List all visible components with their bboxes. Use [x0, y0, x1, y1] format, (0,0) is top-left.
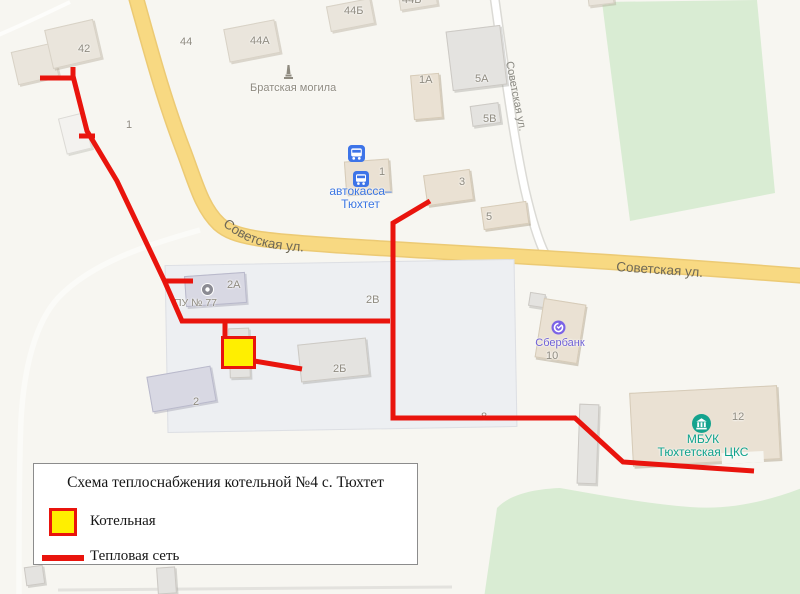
- legend-title: Схема теплоснабжения котельной №4 с. Тюх…: [34, 474, 417, 492]
- map-canvas[interactable]: Советская ул. Советская ул. Советская ул…: [0, 0, 800, 594]
- legend-box: Схема теплоснабжения котельной №4 с. Тюх…: [33, 463, 418, 565]
- legend-boiler-swatch: [49, 508, 77, 536]
- heat-line-main-east: [393, 201, 754, 471]
- heat-line-main-west: [73, 67, 390, 321]
- boiler-house-marker: [221, 336, 256, 369]
- heat-line-branch-2b: [254, 361, 302, 369]
- legend-network-label: Тепловая сеть: [90, 548, 179, 565]
- legend-network-swatch: [42, 555, 84, 561]
- legend-boiler-label: Котельная: [90, 513, 156, 530]
